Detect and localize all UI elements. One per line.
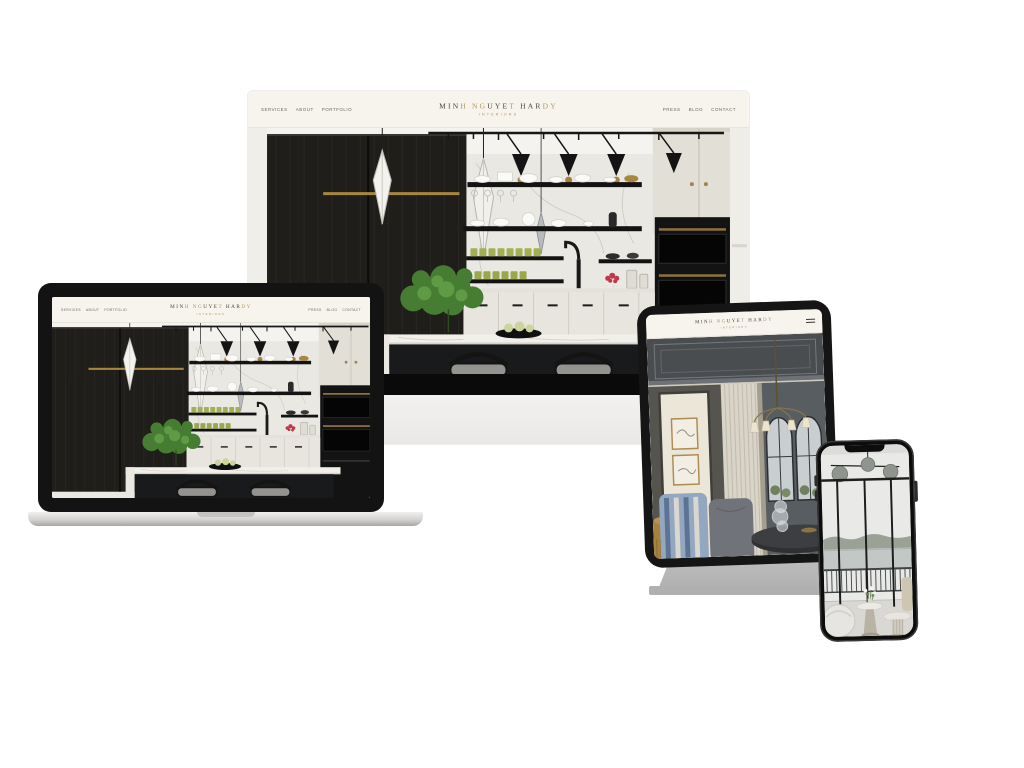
logo-text: MINH NGUYET HARDY <box>439 102 558 111</box>
logo-segment: NG <box>193 304 204 310</box>
desktop-nav-left: SERVICESABOUTPORTFOLIO <box>261 107 352 112</box>
logo-segment: NG <box>472 102 487 111</box>
laptop-bezel: SERVICESABOUTPORTFOLIO MINH NGUYET HARDY… <box>38 283 384 512</box>
tablet-hero <box>647 333 831 559</box>
laptop-screen: SERVICESABOUTPORTFOLIO MINH NGUYET HARDY… <box>52 297 370 498</box>
logo-segment: MIN <box>170 304 185 310</box>
hamburger-menu-icon[interactable] <box>806 316 815 325</box>
laptop-base <box>28 512 423 526</box>
nav-link-blog[interactable]: BLOG <box>327 308 338 312</box>
nav-link-contact[interactable]: CONTACT <box>342 308 361 312</box>
logo-tagline: INTERIORS <box>695 324 773 330</box>
logo-segment: HAR <box>226 304 241 310</box>
nav-link-portfolio[interactable]: PORTFOLIO <box>322 107 352 112</box>
nav-link-contact[interactable]: CONTACT <box>711 107 736 112</box>
phone-volume-up-button <box>814 475 817 486</box>
logo-segment: HAR <box>748 318 763 324</box>
logo-text: MINH NGUYET HARDY <box>170 304 252 310</box>
kitchen-photo <box>52 323 370 498</box>
logo-tagline: INTERIORS <box>170 312 252 316</box>
nav-link-portfolio[interactable]: PORTFOLIO <box>104 308 127 312</box>
phone-power-button <box>914 481 918 502</box>
site-logo: MINH NGUYET HARDY INTERIORS <box>695 317 773 330</box>
laptop-hero <box>52 323 370 498</box>
logo-tagline: INTERIORS <box>439 113 558 117</box>
responsive-device-showcase: SERVICESABOUTPORTFOLIO MINH NGUYET HARDY… <box>0 0 1024 768</box>
logo-segment: NG <box>717 319 727 324</box>
nav-link-press[interactable]: PRESS <box>663 107 681 112</box>
tablet: MINH NGUYET HARDY INTERIORS <box>636 300 839 569</box>
logo-segment: UYE <box>727 318 742 324</box>
phone-screen <box>821 444 914 637</box>
phone-notch <box>845 445 885 453</box>
desktop-site-header: SERVICESABOUTPORTFOLIO MINH NGUYET HARDY… <box>248 91 749 128</box>
nav-link-services[interactable]: SERVICES <box>61 308 81 312</box>
phone-volume-down-button <box>814 490 817 501</box>
site-logo: MINH NGUYET HARDY INTERIORS <box>170 304 252 316</box>
logo-segment: MIN <box>439 102 460 111</box>
laptop-lid-notch <box>197 512 255 517</box>
logo-segment: T <box>509 102 516 111</box>
logo-segment: MIN <box>695 319 709 324</box>
logo-segment: H <box>460 102 468 111</box>
logo-segment: HAR <box>520 102 542 111</box>
monitor-stand-base <box>649 586 839 595</box>
laptop-site-header: SERVICESABOUTPORTFOLIO MINH NGUYET HARDY… <box>52 297 370 323</box>
nav-link-services[interactable]: SERVICES <box>261 107 288 112</box>
tablet-screen: MINH NGUYET HARDY INTERIORS <box>646 309 830 559</box>
nav-link-press[interactable]: PRESS <box>308 308 321 312</box>
nav-link-about[interactable]: ABOUT <box>86 308 99 312</box>
laptop-nav-left: SERVICESABOUTPORTFOLIO <box>61 308 127 312</box>
balcony-photo <box>821 444 914 637</box>
phone-hero <box>821 444 914 637</box>
logo-segment: UYE <box>487 102 509 111</box>
logo-segment: DY <box>241 304 252 310</box>
nav-link-blog[interactable]: BLOG <box>689 107 704 112</box>
logo-segment: DY <box>763 317 773 322</box>
living-room-photo <box>647 333 831 559</box>
logo-segment: DY <box>543 102 558 111</box>
desktop-nav-right: PRESSBLOGCONTACT <box>663 107 736 112</box>
nav-link-about[interactable]: ABOUT <box>296 107 314 112</box>
laptop-nav-right: PRESSBLOGCONTACT <box>308 308 361 312</box>
logo-segment: UYE <box>203 304 218 310</box>
phone <box>815 439 918 642</box>
site-logo: MINH NGUYET HARDY INTERIORS <box>439 102 558 117</box>
